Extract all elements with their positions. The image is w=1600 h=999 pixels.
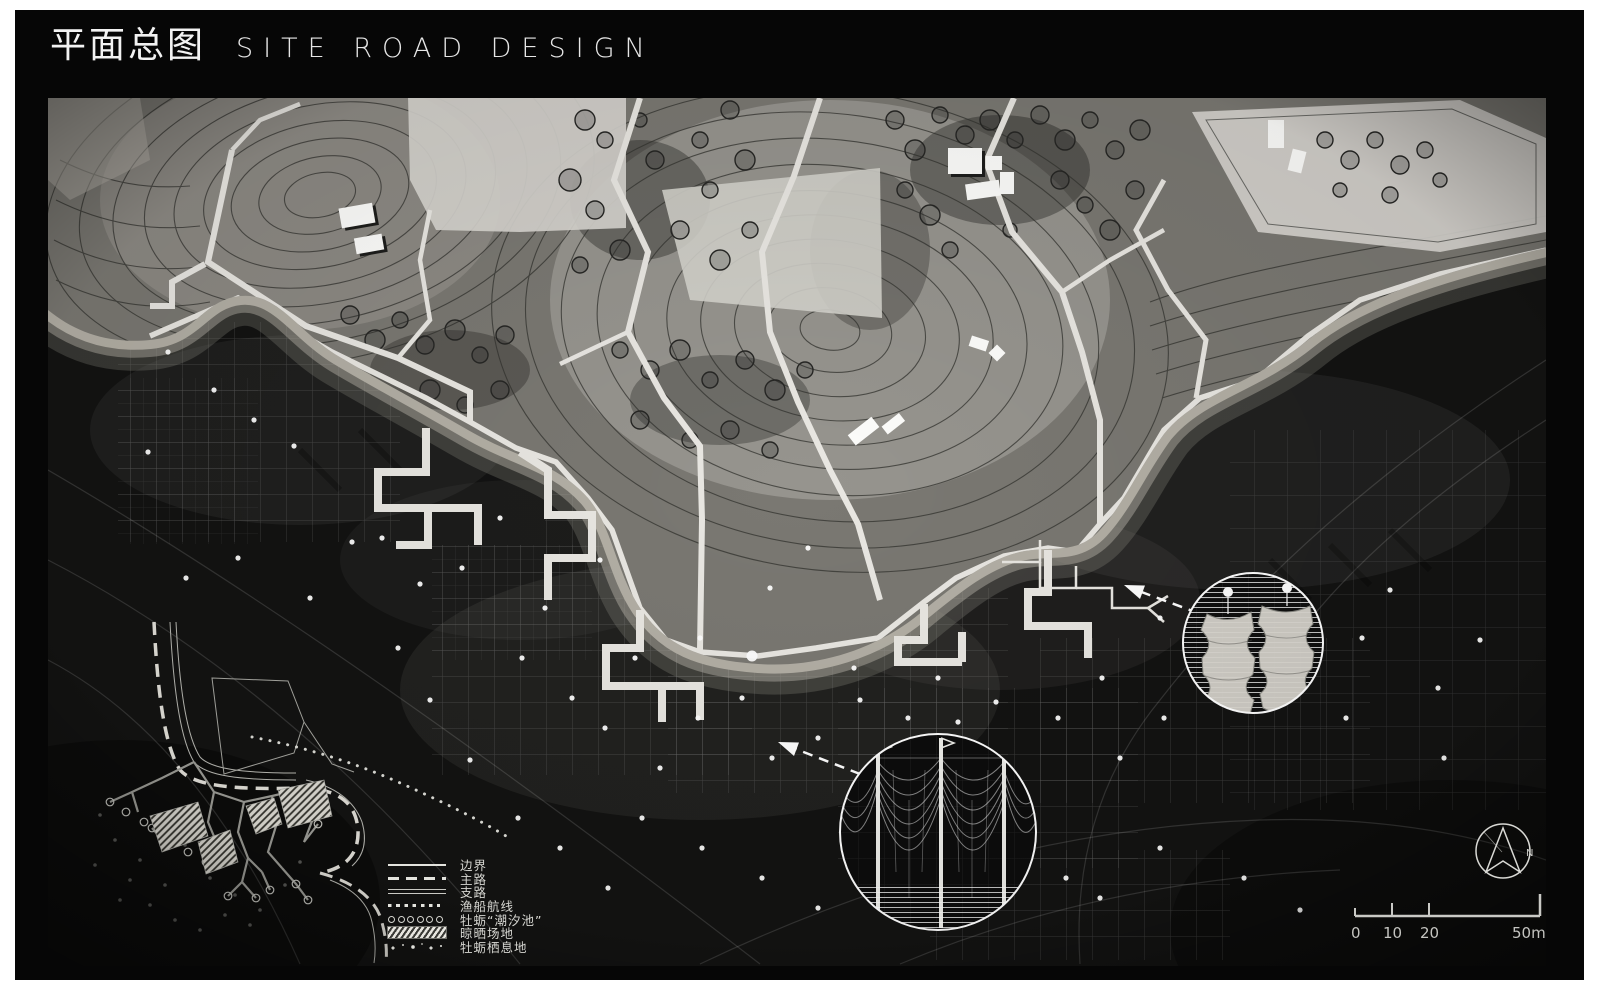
scale-label-0: 0 (1351, 924, 1361, 942)
page-title-en: SITE ROAD DESIGN (236, 33, 655, 64)
title-bar: 平面总图SITE ROAD DESIGN (50, 16, 655, 68)
legend-item-oyster-habitat: 牡蛎栖息地 (388, 940, 542, 954)
scale-label-20: 20 (1420, 924, 1439, 942)
vignette (48, 98, 1546, 966)
site-plan-map: N 0 10 20 50m (0, 0, 1600, 999)
north-label: N (1526, 848, 1533, 859)
dashed-line-icon (388, 877, 460, 880)
scale-label-10: 10 (1383, 924, 1402, 942)
scatter-dots-icon (388, 941, 460, 951)
open-circles-icon (388, 916, 460, 923)
dotted-line-icon (388, 904, 460, 908)
double-line-icon (388, 889, 460, 894)
scale-label-50m: 50m (1512, 924, 1546, 942)
legend: 边界 主路 支路 渔船航线 牡蛎“潮汐池” 晾晒场地 牡蛎栖息地 (388, 858, 542, 953)
page-title-zh: 平面总图 (50, 25, 206, 66)
presentation-board: N 0 10 20 50m 平面总图SITE ROAD DESIGN (0, 0, 1600, 999)
solid-line-icon (388, 864, 460, 867)
hatch-swatch-icon (388, 927, 460, 938)
